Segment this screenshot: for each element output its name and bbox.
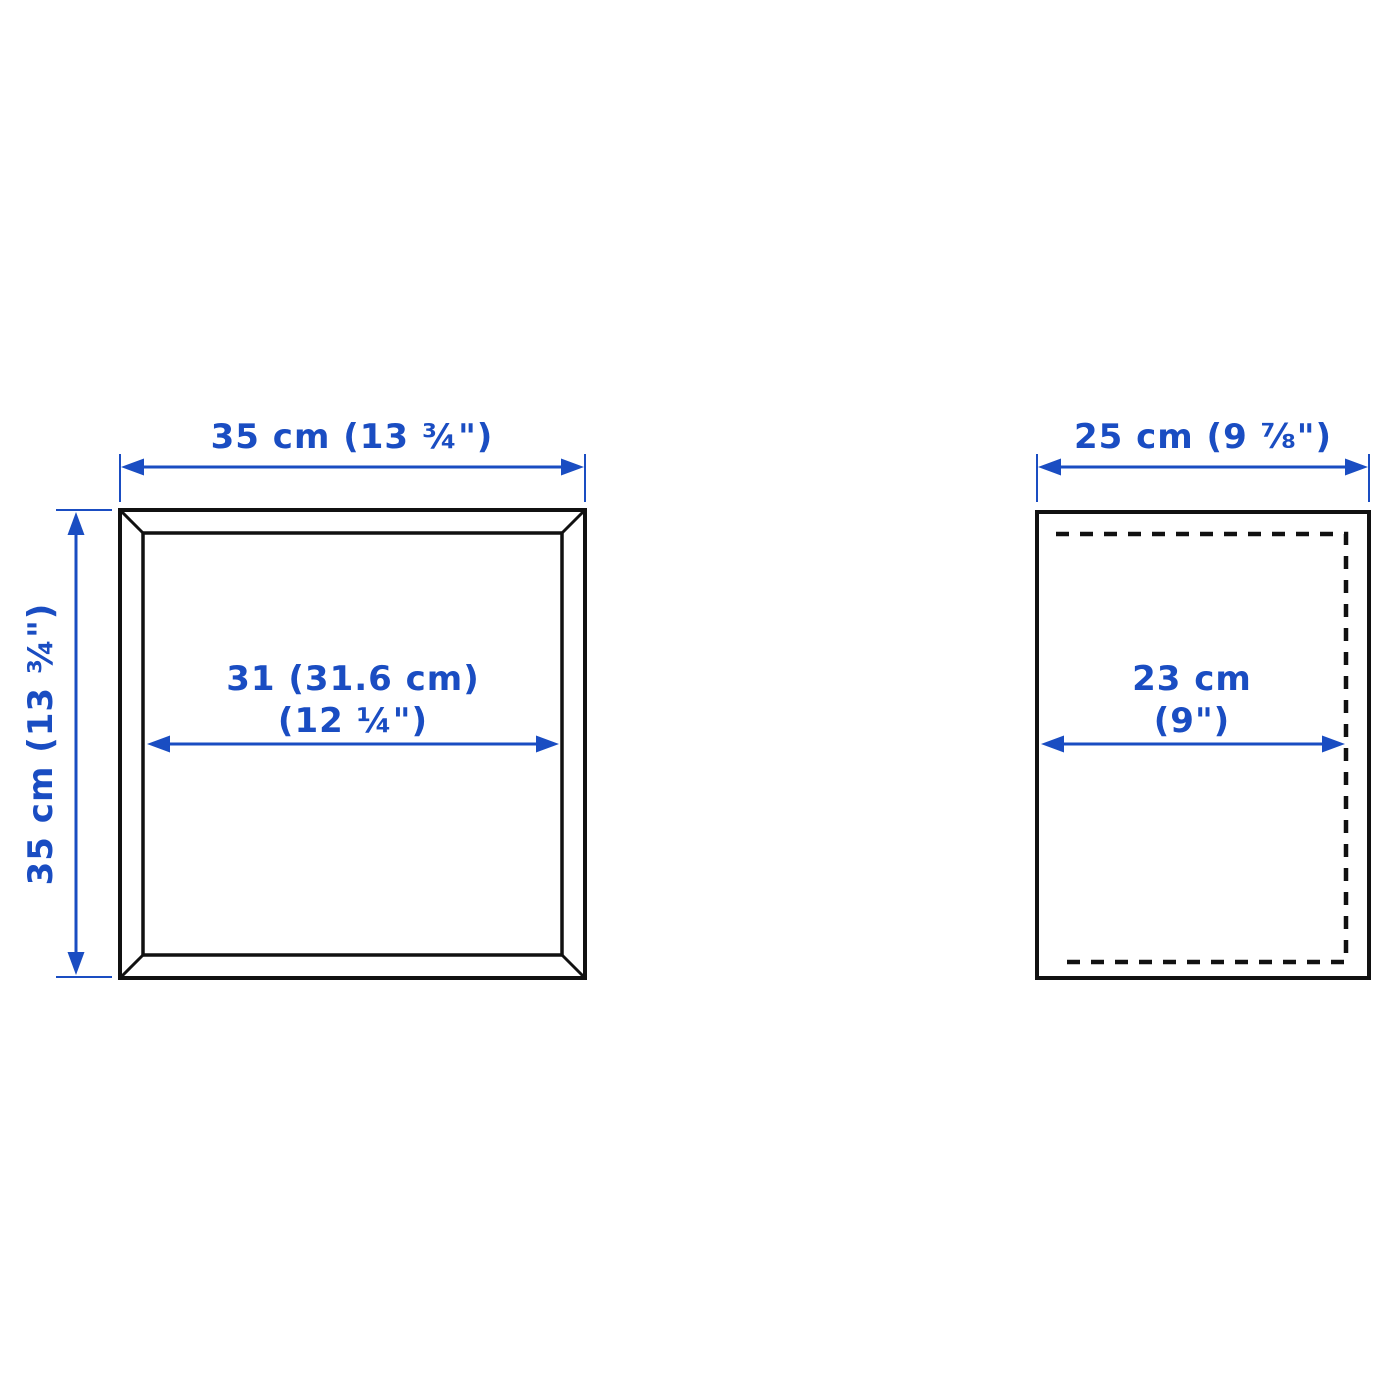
- arrowhead-icon: [68, 952, 85, 975]
- front-inner-width-label-line2: (12 ¼"): [278, 701, 428, 741]
- dimension-diagram-svg: 35 cm (13 ¾") 35 cm (13 ¾") 31 (31.6 cm)…: [0, 0, 1400, 1400]
- dimension-diagram: 35 cm (13 ¾") 35 cm (13 ¾") 31 (31.6 cm)…: [0, 0, 1400, 1400]
- front-height-label: 35 cm (13 ¾"): [21, 603, 61, 886]
- arrowhead-icon: [1345, 459, 1368, 476]
- arrowhead-icon: [68, 512, 85, 535]
- front-width-label: 35 cm (13 ¾"): [211, 417, 494, 457]
- side-inner-depth-label-line1: 23 cm: [1132, 659, 1252, 699]
- arrowhead-icon: [561, 459, 584, 476]
- side-depth-label: 25 cm (9 ⅞"): [1074, 417, 1332, 457]
- arrowhead-icon: [121, 459, 144, 476]
- arrowhead-icon: [1038, 459, 1061, 476]
- side-inner-depth-label-line2: (9"): [1154, 701, 1230, 741]
- front-inner-width-label-line1: 31 (31.6 cm): [226, 659, 480, 699]
